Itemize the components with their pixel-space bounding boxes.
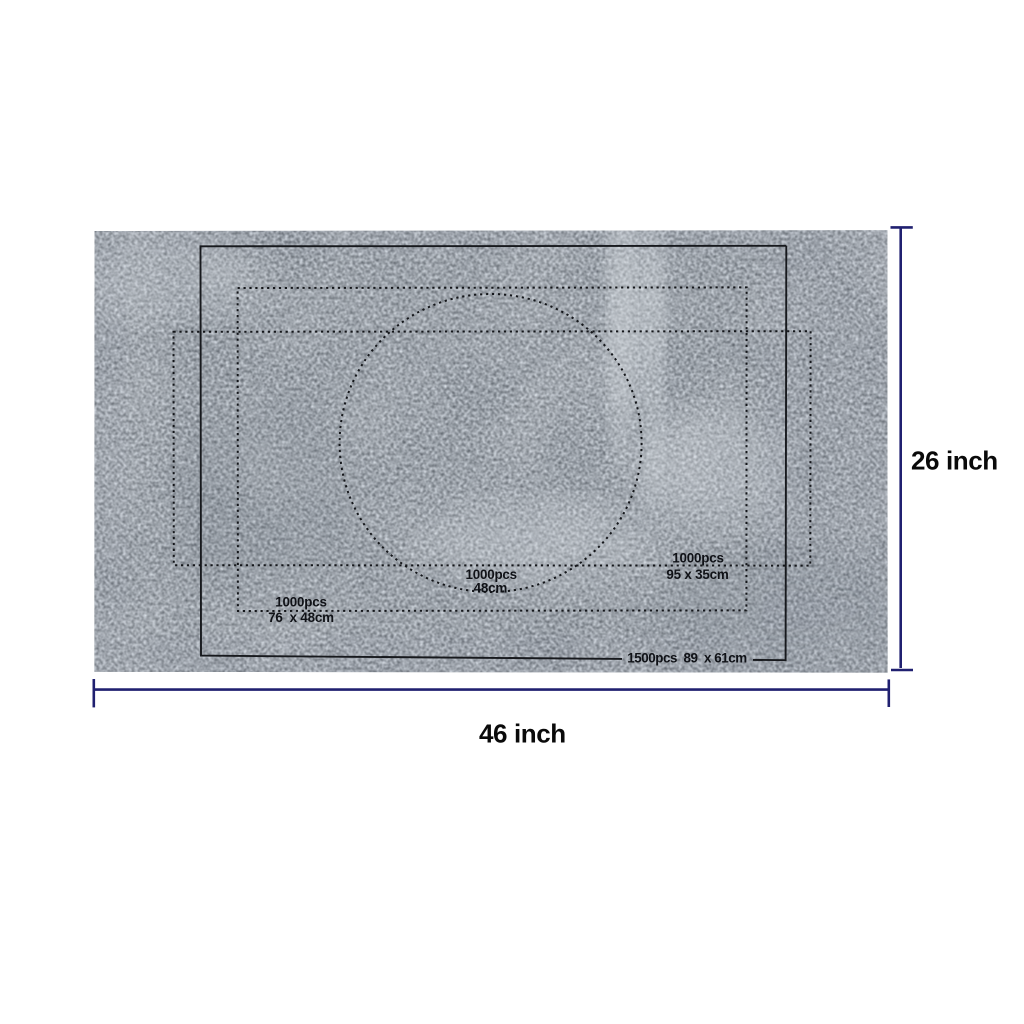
svg-text:1500pcs 89 x 61cm: 1500pcs 89 x 61cm: [627, 651, 747, 666]
svg-text:1000pcs: 1000pcs: [275, 595, 326, 610]
svg-text:26 inch: 26 inch: [911, 446, 998, 476]
svg-text:95 x 35cm: 95 x 35cm: [666, 567, 729, 582]
svg-text:76 x 48cm: 76 x 48cm: [268, 610, 334, 625]
svg-text:1000pcs: 1000pcs: [672, 551, 723, 566]
svg-text:48cm: 48cm: [474, 581, 508, 596]
svg-text:46 inch: 46 inch: [479, 718, 566, 748]
